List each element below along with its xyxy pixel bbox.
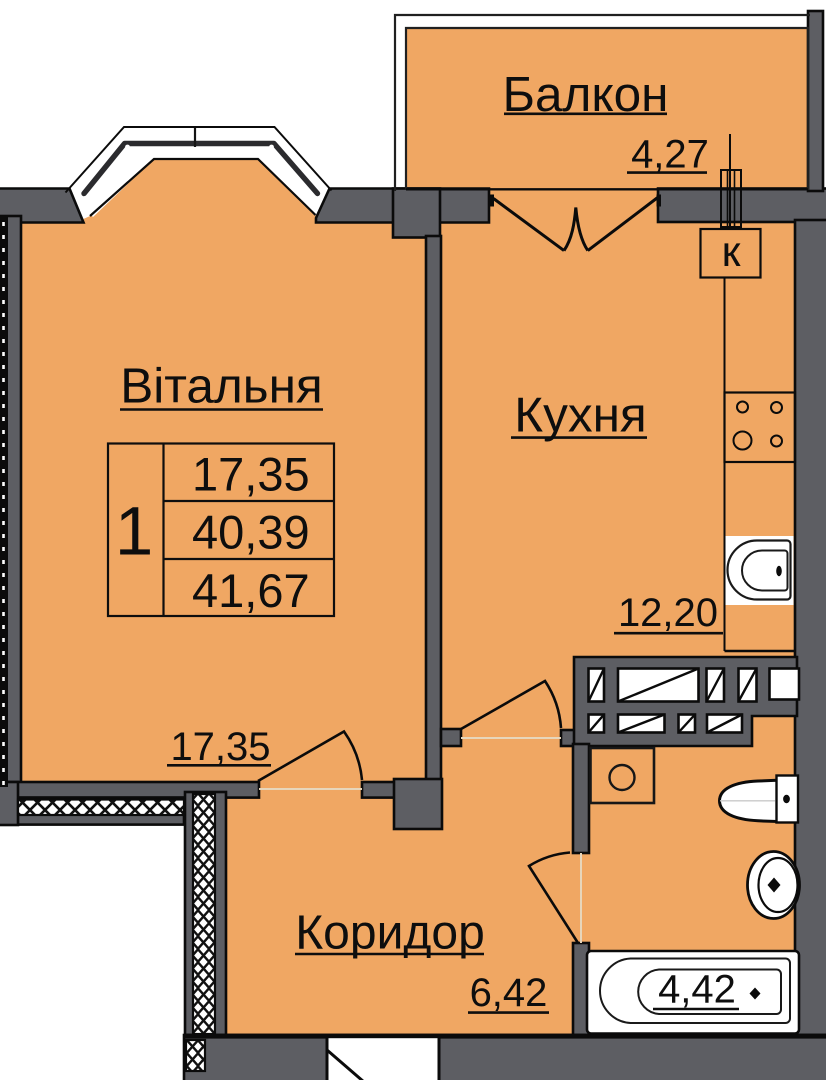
- svg-text:к: к: [722, 228, 742, 276]
- svg-text:4,42: 4,42: [658, 968, 736, 1012]
- svg-text:Кухня: Кухня: [514, 387, 646, 442]
- svg-text:40,39: 40,39: [192, 506, 310, 559]
- svg-text:12,20: 12,20: [618, 591, 718, 635]
- svg-text:Вітальня: Вітальня: [120, 359, 322, 414]
- svg-text:17,35: 17,35: [192, 448, 310, 501]
- svg-text:4,27: 4,27: [631, 133, 709, 177]
- svg-text:Коридор: Коридор: [295, 906, 485, 959]
- svg-text:41,67: 41,67: [192, 564, 310, 617]
- svg-text:1: 1: [115, 493, 153, 570]
- svg-text:17,35: 17,35: [170, 725, 270, 769]
- svg-text:6,42: 6,42: [470, 971, 548, 1015]
